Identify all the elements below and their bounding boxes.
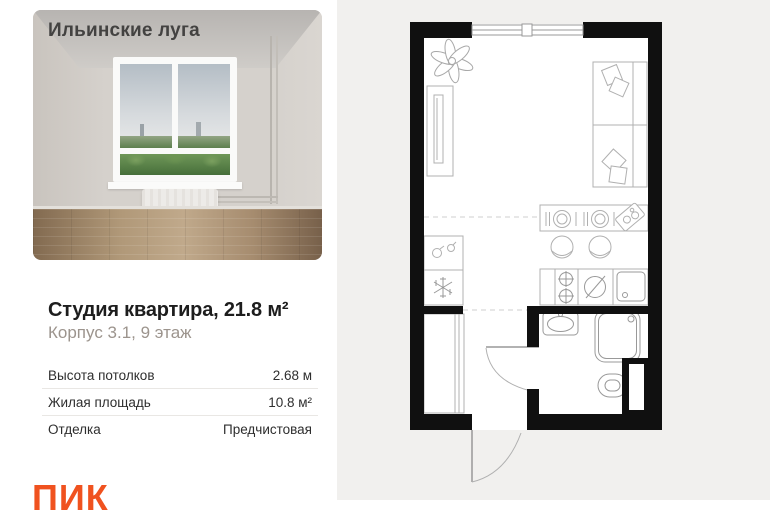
window-trees (120, 154, 230, 175)
window-sill (108, 182, 242, 189)
plan-window (472, 24, 583, 36)
spec-table: Высота потолков 2.68 м Жилая площадь 10.… (42, 362, 318, 442)
wall-pipe (276, 36, 278, 204)
listing-title: Студия квартира, 21.8 м² (48, 299, 288, 322)
spec-row-living-area: Жилая площадь 10.8 м² (42, 388, 318, 415)
entry-door (472, 430, 521, 482)
spec-label: Жилая площадь (42, 395, 151, 410)
photo-window (113, 57, 237, 182)
wall-pipe (270, 36, 272, 204)
window-mullion-vertical (172, 64, 178, 148)
photo-floor (33, 209, 322, 260)
shower (595, 310, 640, 362)
spec-row-ceiling-height: Высота потолков 2.68 м (42, 362, 318, 388)
bar-table (540, 203, 648, 232)
pik-logo[interactable]: ПИК (32, 477, 109, 519)
dishwasher (617, 272, 645, 301)
project-name-overlay: Ильинские луга (48, 20, 200, 42)
fridge (424, 270, 463, 305)
sofa-bed (593, 62, 647, 187)
window-building (196, 122, 201, 136)
spec-value: 10.8 м² (268, 395, 318, 410)
wall-pipe (217, 201, 278, 203)
bathroom-sink (543, 312, 578, 335)
hall-closet (424, 314, 464, 413)
wardrobe (427, 86, 453, 176)
spec-label: Отделка (42, 422, 101, 437)
spec-row-finishing: Отделка Предчистовая (42, 415, 318, 442)
spec-label: Высота потолков (42, 368, 155, 383)
kitchen-row (540, 269, 648, 305)
spec-value: 2.68 м (273, 368, 318, 383)
spec-value: Предчистовая (223, 422, 318, 437)
duct-shaft (629, 364, 644, 410)
apartment-photo[interactable]: Ильинские луга (33, 10, 322, 260)
listing-subtitle: Корпус 3.1, 9 этаж (48, 323, 192, 343)
window-building (140, 124, 144, 136)
kitchen-counter (424, 236, 463, 270)
wall-pipe (217, 196, 278, 198)
